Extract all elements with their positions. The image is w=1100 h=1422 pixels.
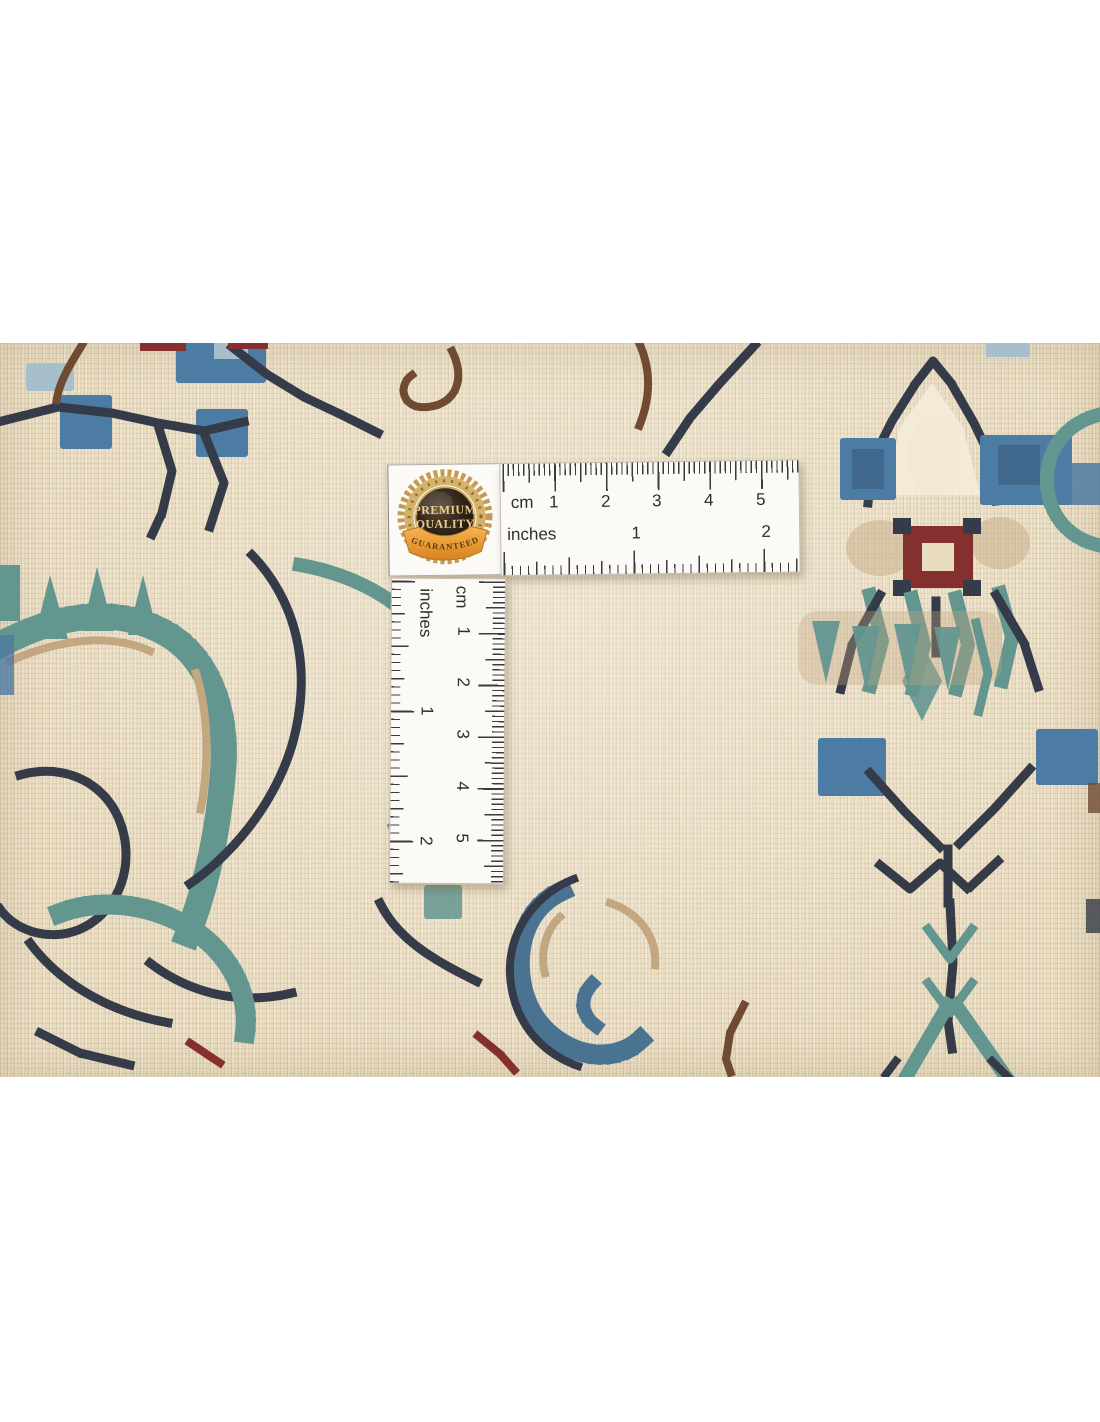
inch-tick-strip-vertical <box>390 581 415 883</box>
cm-number-2-h: 2 <box>601 493 611 510</box>
cm-tick-strip-horizontal <box>502 460 798 492</box>
inch-number-1-v: 1 <box>419 706 436 716</box>
cm-number-1-h: 1 <box>549 493 559 510</box>
rug-motif-left-scroll <box>0 555 448 1065</box>
cm-unit-label-v: cm <box>453 586 470 609</box>
rug-motif-below-ruler <box>380 885 480 983</box>
inch-unit-label-h: inches <box>507 525 556 543</box>
cm-number-4-v: 4 <box>454 781 471 791</box>
cm-unit-label-h: cm <box>511 494 534 511</box>
cm-number-3-h: 3 <box>652 492 662 509</box>
rug-motif-bottom-curl <box>478 879 744 1077</box>
cm-number-5-h: 5 <box>756 491 766 508</box>
vertical-ruler: cm 1 2 3 4 5 inches 1 2 <box>389 578 506 885</box>
cm-number-2-v: 2 <box>455 677 472 687</box>
badge-line1: PREMIUM <box>413 502 476 517</box>
cm-number-1-v: 1 <box>455 626 472 636</box>
rug-motif-bottom-right <box>798 611 1100 1077</box>
photo-page: PREMIUM QUALITY GUARANTEED cm 1 2 3 4 5 … <box>0 0 1100 1422</box>
horizontal-ruler: cm 1 2 3 4 5 inches 1 2 <box>499 459 800 576</box>
cm-number-3-v: 3 <box>454 729 471 739</box>
rug-pattern-illustration <box>0 343 1100 1077</box>
inch-number-2-h: 2 <box>761 523 771 540</box>
inch-number-2-v: 2 <box>418 836 435 846</box>
premium-quality-seal: PREMIUM QUALITY GUARANTEED <box>388 464 501 575</box>
cm-number-4-h: 4 <box>704 492 714 509</box>
inch-tick-strip-horizontal <box>503 548 799 575</box>
premium-quality-badge: PREMIUM QUALITY GUARANTEED <box>387 463 502 576</box>
inch-number-1-h: 1 <box>631 524 641 541</box>
cm-tick-strip-vertical <box>477 581 505 883</box>
horizontal-ruler-assembly: PREMIUM QUALITY GUARANTEED cm 1 2 3 4 5 … <box>387 459 798 575</box>
rug-photo <box>0 343 1100 1077</box>
badge-line2: QUALITY <box>416 516 475 531</box>
cm-number-5-v: 5 <box>454 833 471 843</box>
inch-unit-label-v: inches <box>417 588 434 637</box>
